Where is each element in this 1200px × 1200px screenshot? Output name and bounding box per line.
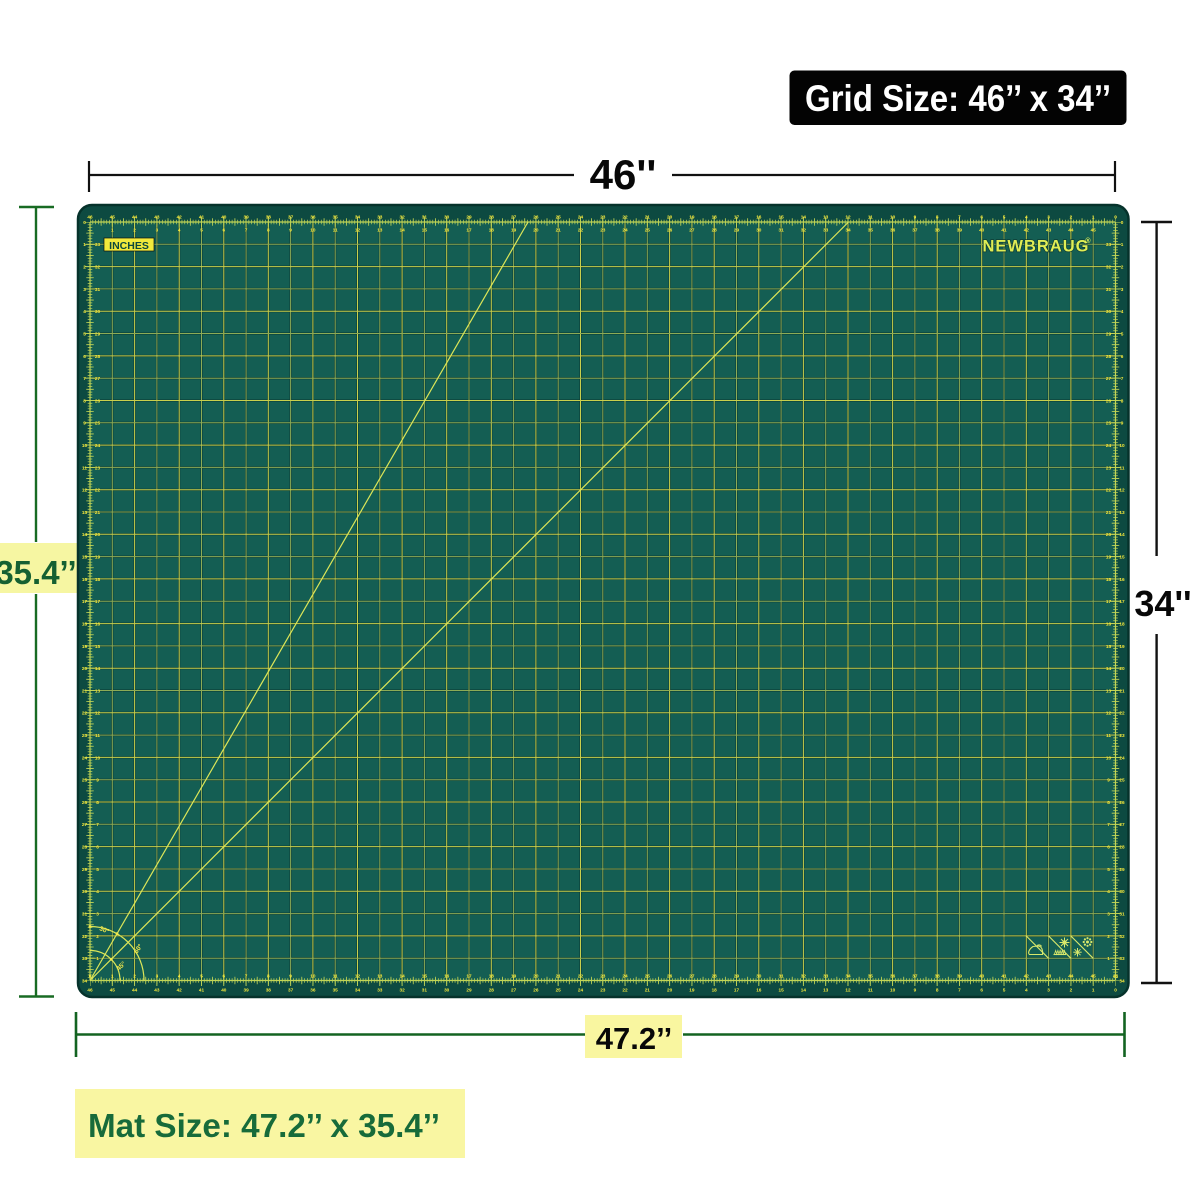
- svg-text:17: 17: [734, 987, 740, 992]
- svg-text:17: 17: [95, 599, 101, 604]
- svg-text:22: 22: [1119, 711, 1125, 716]
- svg-text:35: 35: [868, 974, 874, 979]
- svg-text:6: 6: [96, 845, 99, 850]
- svg-text:29: 29: [734, 227, 740, 232]
- svg-text:43: 43: [154, 987, 160, 992]
- svg-text:35.4’’: 35.4’’: [0, 554, 77, 591]
- svg-text:1: 1: [1092, 987, 1095, 992]
- svg-text:27: 27: [1119, 822, 1125, 827]
- svg-text:30: 30: [756, 227, 762, 232]
- svg-text:31: 31: [1106, 287, 1112, 292]
- svg-text:40: 40: [221, 215, 227, 220]
- svg-text:28: 28: [489, 987, 495, 992]
- svg-text:26: 26: [667, 974, 673, 979]
- svg-text:10: 10: [95, 755, 101, 760]
- svg-text:45: 45: [110, 987, 116, 992]
- svg-text:Mat Size: 47.2’’ x 35.4’’: Mat Size: 47.2’’ x 35.4’’: [88, 1108, 440, 1145]
- svg-text:21: 21: [556, 974, 562, 979]
- svg-text:6: 6: [1121, 354, 1124, 359]
- svg-text:23: 23: [95, 465, 101, 470]
- svg-text:24: 24: [95, 443, 101, 448]
- svg-text:9: 9: [83, 421, 86, 426]
- svg-text:3: 3: [156, 974, 159, 979]
- svg-text:27: 27: [1106, 376, 1112, 381]
- svg-text:42: 42: [177, 987, 183, 992]
- svg-text:22: 22: [578, 974, 584, 979]
- svg-text:41: 41: [1001, 227, 1007, 232]
- svg-text:46'': 46'': [590, 151, 657, 198]
- svg-text:39: 39: [243, 987, 249, 992]
- svg-text:®: ®: [1085, 237, 1091, 245]
- svg-text:8: 8: [267, 974, 270, 979]
- svg-text:10: 10: [890, 215, 896, 220]
- svg-text:33: 33: [82, 956, 88, 961]
- svg-text:15: 15: [1106, 644, 1112, 649]
- svg-text:16: 16: [444, 227, 450, 232]
- svg-text:32: 32: [801, 227, 807, 232]
- svg-text:22: 22: [578, 227, 584, 232]
- svg-text:25: 25: [1106, 421, 1112, 426]
- svg-text:28: 28: [82, 845, 88, 850]
- svg-text:30: 30: [756, 974, 762, 979]
- svg-text:21: 21: [645, 215, 651, 220]
- svg-text:40: 40: [221, 987, 227, 992]
- svg-text:24: 24: [82, 755, 88, 760]
- svg-text:35: 35: [333, 215, 339, 220]
- svg-text:INCHES: INCHES: [109, 240, 149, 252]
- svg-text:38: 38: [266, 215, 272, 220]
- svg-text:28: 28: [95, 354, 101, 359]
- svg-text:19: 19: [1106, 555, 1112, 560]
- svg-text:24: 24: [578, 215, 584, 220]
- svg-text:13: 13: [823, 215, 829, 220]
- svg-text:9: 9: [914, 987, 917, 992]
- svg-text:43: 43: [154, 215, 160, 220]
- svg-text:26: 26: [1106, 398, 1112, 403]
- svg-text:1: 1: [1092, 215, 1095, 220]
- svg-text:18: 18: [489, 974, 495, 979]
- svg-text:6: 6: [222, 227, 225, 232]
- svg-text:20: 20: [667, 215, 673, 220]
- svg-text:20: 20: [533, 227, 539, 232]
- svg-text:10: 10: [310, 974, 316, 979]
- svg-text:30: 30: [1106, 309, 1112, 314]
- svg-text:37: 37: [912, 227, 918, 232]
- svg-text:7: 7: [96, 822, 99, 827]
- svg-text:46: 46: [87, 215, 93, 220]
- svg-text:15: 15: [95, 644, 101, 649]
- svg-text:32: 32: [82, 934, 88, 939]
- svg-text:28: 28: [712, 974, 718, 979]
- svg-text:26: 26: [82, 800, 88, 805]
- svg-text:5: 5: [1107, 867, 1110, 872]
- svg-text:2: 2: [133, 974, 136, 979]
- svg-text:29: 29: [466, 987, 472, 992]
- svg-text:15: 15: [778, 215, 784, 220]
- svg-text:43: 43: [1046, 227, 1052, 232]
- svg-text:40: 40: [979, 227, 985, 232]
- svg-text:11: 11: [82, 465, 87, 470]
- svg-text:31: 31: [95, 287, 101, 292]
- svg-text:14: 14: [801, 215, 807, 220]
- svg-text:30: 30: [444, 215, 450, 220]
- svg-text:8: 8: [267, 227, 270, 232]
- svg-text:17: 17: [1119, 599, 1125, 604]
- svg-text:31: 31: [778, 974, 784, 979]
- svg-text:19: 19: [82, 644, 88, 649]
- svg-text:1: 1: [96, 956, 99, 961]
- svg-text:14: 14: [1106, 666, 1112, 671]
- svg-text:26: 26: [95, 398, 101, 403]
- svg-text:8: 8: [936, 987, 939, 992]
- svg-text:24: 24: [1106, 443, 1112, 448]
- svg-text:19: 19: [689, 987, 695, 992]
- svg-text:3: 3: [1047, 215, 1050, 220]
- svg-text:13: 13: [1119, 510, 1125, 515]
- svg-text:21: 21: [556, 227, 562, 232]
- svg-text:14: 14: [399, 227, 405, 232]
- svg-text:34: 34: [1119, 978, 1125, 983]
- svg-text:7: 7: [245, 227, 248, 232]
- svg-text:12: 12: [355, 227, 361, 232]
- svg-text:7: 7: [83, 376, 86, 381]
- svg-text:21: 21: [1106, 510, 1112, 515]
- svg-text:2: 2: [1121, 265, 1124, 270]
- svg-text:28: 28: [1106, 354, 1112, 359]
- svg-text:27: 27: [511, 987, 517, 992]
- svg-text:9: 9: [289, 974, 292, 979]
- svg-text:10: 10: [1119, 443, 1125, 448]
- svg-text:29: 29: [95, 331, 101, 336]
- svg-text:12: 12: [845, 215, 851, 220]
- svg-text:11: 11: [333, 227, 338, 232]
- svg-text:33: 33: [95, 242, 101, 247]
- svg-text:6: 6: [980, 987, 983, 992]
- svg-text:39: 39: [957, 227, 963, 232]
- svg-text:18: 18: [95, 577, 101, 582]
- svg-text:42: 42: [1024, 227, 1030, 232]
- svg-text:16: 16: [756, 215, 762, 220]
- svg-text:36: 36: [310, 215, 316, 220]
- svg-text:33: 33: [1119, 956, 1125, 961]
- svg-text:23: 23: [600, 227, 606, 232]
- svg-text:30: 30: [1119, 889, 1125, 894]
- svg-text:13: 13: [823, 987, 829, 992]
- svg-text:NEWBRAUG: NEWBRAUG: [983, 238, 1090, 256]
- svg-text:26: 26: [533, 987, 539, 992]
- svg-text:20: 20: [82, 666, 88, 671]
- svg-text:17: 17: [1106, 599, 1112, 604]
- svg-text:39: 39: [957, 974, 963, 979]
- svg-text:18: 18: [82, 622, 88, 627]
- svg-text:11: 11: [868, 215, 873, 220]
- svg-text:3: 3: [1047, 987, 1050, 992]
- svg-text:36: 36: [890, 974, 896, 979]
- svg-text:36: 36: [310, 987, 316, 992]
- svg-text:25: 25: [645, 974, 651, 979]
- svg-text:31: 31: [422, 987, 428, 992]
- svg-text:31: 31: [1119, 912, 1125, 917]
- svg-text:12: 12: [1119, 488, 1125, 493]
- svg-text:27: 27: [511, 215, 517, 220]
- svg-text:33: 33: [823, 227, 829, 232]
- svg-text:22: 22: [622, 987, 628, 992]
- svg-text:20: 20: [533, 974, 539, 979]
- svg-text:46: 46: [1113, 974, 1119, 979]
- svg-text:38: 38: [266, 987, 272, 992]
- svg-text:9: 9: [1107, 778, 1110, 783]
- svg-text:11: 11: [95, 733, 100, 738]
- svg-text:13: 13: [377, 974, 383, 979]
- svg-text:9: 9: [96, 778, 99, 783]
- svg-text:16: 16: [1106, 622, 1112, 627]
- svg-text:14: 14: [1119, 532, 1125, 537]
- svg-text:14: 14: [399, 974, 405, 979]
- svg-text:23: 23: [600, 987, 606, 992]
- svg-text:11: 11: [1120, 465, 1125, 470]
- svg-text:11: 11: [1106, 733, 1111, 738]
- svg-text:32: 32: [801, 974, 807, 979]
- svg-text:13: 13: [95, 688, 101, 693]
- svg-text:23: 23: [1106, 465, 1112, 470]
- svg-text:7: 7: [245, 974, 248, 979]
- svg-text:15: 15: [82, 555, 88, 560]
- svg-text:21: 21: [645, 987, 651, 992]
- svg-text:8: 8: [1121, 398, 1124, 403]
- svg-text:36: 36: [890, 227, 896, 232]
- svg-text:28: 28: [1119, 845, 1125, 850]
- svg-text:19: 19: [689, 215, 695, 220]
- svg-text:32: 32: [1106, 265, 1112, 270]
- svg-text:40: 40: [979, 974, 985, 979]
- svg-text:16: 16: [82, 577, 88, 582]
- svg-text:13: 13: [1106, 688, 1112, 693]
- svg-text:27: 27: [82, 822, 88, 827]
- svg-text:32: 32: [1119, 934, 1125, 939]
- svg-text:24: 24: [578, 987, 584, 992]
- svg-text:31: 31: [82, 912, 88, 917]
- svg-text:33: 33: [1106, 242, 1112, 247]
- svg-text:4: 4: [1121, 309, 1124, 314]
- svg-text:4: 4: [1025, 215, 1028, 220]
- svg-text:21: 21: [82, 688, 88, 693]
- svg-text:24: 24: [622, 227, 628, 232]
- svg-text:21: 21: [1119, 688, 1125, 693]
- svg-text:2: 2: [83, 265, 86, 270]
- svg-text:33: 33: [377, 987, 383, 992]
- svg-text:19: 19: [511, 974, 517, 979]
- svg-text:33: 33: [377, 215, 383, 220]
- svg-text:21: 21: [95, 510, 101, 515]
- svg-text:5: 5: [1003, 987, 1006, 992]
- svg-text:30: 30: [95, 309, 101, 314]
- svg-text:18: 18: [1106, 577, 1112, 582]
- svg-text:2: 2: [133, 227, 136, 232]
- svg-text:17: 17: [82, 599, 88, 604]
- svg-text:26: 26: [1119, 800, 1125, 805]
- svg-text:18: 18: [712, 987, 718, 992]
- svg-text:16: 16: [756, 987, 762, 992]
- svg-text:3: 3: [96, 912, 99, 917]
- svg-text:45: 45: [1091, 974, 1097, 979]
- svg-text:28: 28: [489, 215, 495, 220]
- svg-text:14: 14: [95, 666, 101, 671]
- svg-text:32: 32: [399, 987, 405, 992]
- svg-text:4: 4: [1107, 889, 1110, 894]
- svg-text:8: 8: [96, 800, 99, 805]
- svg-text:5: 5: [1121, 331, 1124, 336]
- svg-text:26: 26: [533, 215, 539, 220]
- svg-text:0: 0: [1114, 987, 1117, 992]
- svg-text:44: 44: [1068, 227, 1074, 232]
- svg-text:4: 4: [83, 309, 86, 314]
- svg-text:34: 34: [355, 987, 361, 992]
- svg-text:1: 1: [1121, 242, 1124, 247]
- svg-text:34: 34: [845, 227, 851, 232]
- svg-text:6: 6: [222, 974, 225, 979]
- svg-text:4: 4: [178, 227, 181, 232]
- svg-text:17: 17: [466, 227, 472, 232]
- svg-text:33: 33: [823, 974, 829, 979]
- svg-text:29: 29: [1106, 331, 1112, 336]
- svg-text:22: 22: [1106, 488, 1112, 493]
- svg-text:37: 37: [912, 974, 918, 979]
- svg-text:12: 12: [355, 974, 361, 979]
- svg-text:29: 29: [1119, 867, 1125, 872]
- svg-text:29: 29: [82, 867, 88, 872]
- svg-text:12: 12: [82, 488, 88, 493]
- svg-text:30: 30: [444, 987, 450, 992]
- svg-text:25: 25: [95, 421, 101, 426]
- svg-text:25: 25: [556, 215, 562, 220]
- svg-text:9: 9: [289, 227, 292, 232]
- svg-text:9: 9: [1121, 421, 1124, 426]
- svg-text:16: 16: [444, 974, 450, 979]
- svg-text:1: 1: [1107, 956, 1110, 961]
- svg-text:6: 6: [980, 215, 983, 220]
- svg-text:14: 14: [801, 987, 807, 992]
- svg-text:3: 3: [1107, 912, 1110, 917]
- svg-text:45: 45: [110, 215, 116, 220]
- svg-text:23: 23: [1119, 733, 1125, 738]
- svg-text:27: 27: [689, 227, 695, 232]
- svg-text:41: 41: [1001, 974, 1007, 979]
- svg-text:44: 44: [132, 215, 138, 220]
- svg-text:16: 16: [1119, 577, 1125, 582]
- svg-text:10: 10: [1106, 755, 1112, 760]
- svg-text:22: 22: [622, 215, 628, 220]
- svg-text:31: 31: [422, 215, 428, 220]
- svg-text:38: 38: [935, 974, 941, 979]
- svg-text:23: 23: [600, 215, 606, 220]
- svg-text:29: 29: [466, 215, 472, 220]
- svg-text:30: 30: [82, 889, 88, 894]
- svg-text:5: 5: [200, 974, 203, 979]
- svg-text:35: 35: [333, 987, 339, 992]
- svg-text:8: 8: [1107, 800, 1110, 805]
- svg-text:37: 37: [288, 215, 294, 220]
- svg-text:11: 11: [333, 974, 338, 979]
- svg-text:34'': 34'': [1134, 583, 1191, 624]
- svg-text:26: 26: [667, 227, 673, 232]
- svg-text:10: 10: [82, 443, 88, 448]
- svg-text:42: 42: [1024, 974, 1030, 979]
- svg-text:4: 4: [96, 889, 99, 894]
- svg-text:43: 43: [1046, 974, 1052, 979]
- svg-text:12: 12: [95, 711, 101, 716]
- svg-text:13: 13: [82, 510, 88, 515]
- svg-text:38: 38: [935, 227, 941, 232]
- svg-text:29: 29: [734, 974, 740, 979]
- svg-text:27: 27: [95, 376, 101, 381]
- svg-text:12: 12: [845, 987, 851, 992]
- svg-text:45: 45: [1091, 227, 1097, 232]
- svg-text:34: 34: [82, 978, 88, 983]
- svg-text:31: 31: [778, 227, 784, 232]
- svg-text:27: 27: [689, 974, 695, 979]
- svg-text:3: 3: [156, 227, 159, 232]
- svg-text:0: 0: [83, 220, 86, 225]
- svg-text:7: 7: [1121, 376, 1124, 381]
- svg-text:2: 2: [96, 934, 99, 939]
- svg-text:1: 1: [111, 974, 114, 979]
- svg-text:7: 7: [958, 987, 961, 992]
- svg-text:46: 46: [87, 987, 93, 992]
- svg-text:25: 25: [1119, 778, 1125, 783]
- svg-text:39: 39: [243, 215, 249, 220]
- svg-text:6: 6: [83, 354, 86, 359]
- svg-text:5: 5: [1003, 215, 1006, 220]
- svg-text:16: 16: [95, 622, 101, 627]
- svg-text:17: 17: [466, 974, 472, 979]
- svg-text:5: 5: [200, 227, 203, 232]
- svg-text:2: 2: [1107, 934, 1110, 939]
- svg-text:7: 7: [1107, 822, 1110, 827]
- svg-text:1: 1: [83, 242, 86, 247]
- svg-text:34: 34: [355, 215, 361, 220]
- svg-text:10: 10: [890, 987, 896, 992]
- svg-text:5: 5: [96, 867, 99, 872]
- svg-text:Grid Size: 46’’ x 34’’: Grid Size: 46’’ x 34’’: [805, 78, 1111, 119]
- svg-text:23: 23: [82, 733, 88, 738]
- svg-text:0: 0: [1121, 220, 1124, 225]
- svg-text:19: 19: [1119, 644, 1125, 649]
- svg-text:34: 34: [845, 974, 851, 979]
- svg-text:47.2’’: 47.2’’: [596, 1021, 672, 1056]
- svg-text:8: 8: [83, 398, 86, 403]
- svg-text:4: 4: [178, 974, 181, 979]
- svg-text:7: 7: [958, 215, 961, 220]
- svg-text:22: 22: [95, 488, 101, 493]
- svg-text:20: 20: [667, 987, 673, 992]
- svg-text:42: 42: [177, 215, 183, 220]
- svg-text:25: 25: [82, 778, 88, 783]
- svg-text:12: 12: [1106, 711, 1112, 716]
- svg-text:4: 4: [1025, 987, 1028, 992]
- svg-text:20: 20: [1106, 532, 1112, 537]
- svg-text:15: 15: [778, 987, 784, 992]
- svg-text:2: 2: [1070, 215, 1073, 220]
- svg-text:18: 18: [1119, 622, 1125, 627]
- svg-text:32: 32: [95, 265, 101, 270]
- svg-text:11: 11: [868, 987, 873, 992]
- svg-text:14: 14: [82, 532, 88, 537]
- svg-text:2: 2: [1070, 987, 1073, 992]
- svg-text:22: 22: [82, 711, 88, 716]
- svg-text:19: 19: [95, 555, 101, 560]
- svg-text:5: 5: [83, 331, 86, 336]
- svg-text:25: 25: [645, 227, 651, 232]
